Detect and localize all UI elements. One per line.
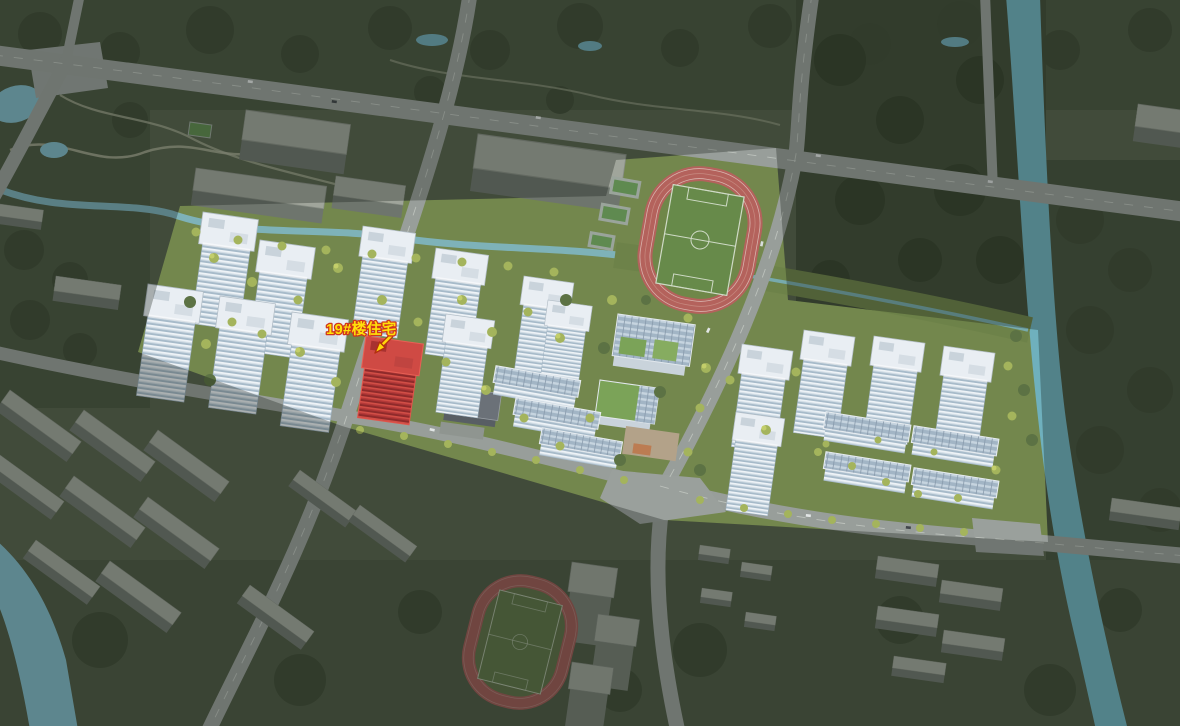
building-label: 19#楼住宅 — [326, 320, 397, 338]
aerial-rendering: 19#楼住宅 — [0, 0, 1180, 726]
